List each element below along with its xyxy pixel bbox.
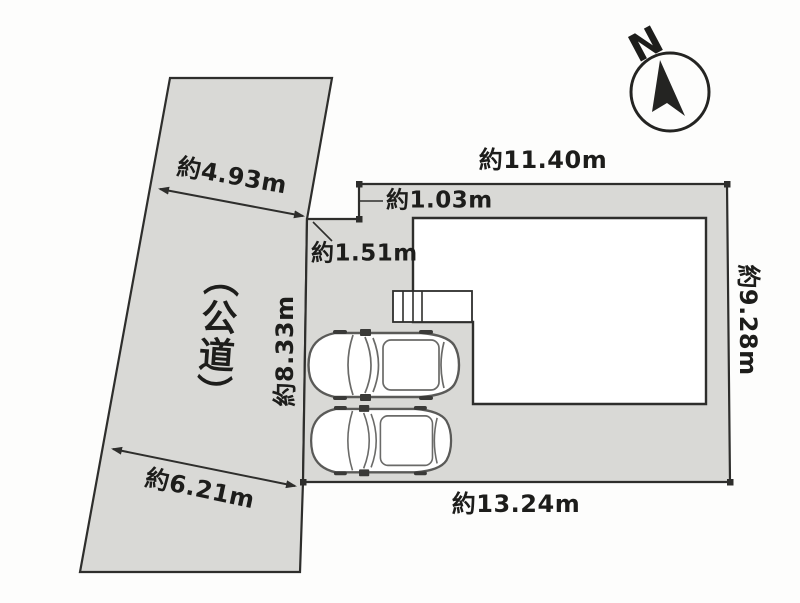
- car-top-view-2: [311, 405, 451, 476]
- dimension-label-plot-right: 約9.28m: [736, 264, 760, 375]
- dimension-label-frontage: 約1.51m: [311, 243, 418, 266]
- entrance-steps: [393, 291, 472, 322]
- car-top-view-1: [309, 329, 460, 401]
- dimension-label-plot-top: 約11.40m: [479, 148, 607, 172]
- site-plan-diagram: 約4.93m 約11.40m 約1.03m 約1.51m 約9.28m 約8.3…: [0, 0, 800, 603]
- dimension-label-notch: 約1.03m: [386, 190, 493, 213]
- road-label: （公道）: [191, 259, 238, 413]
- site-plan-drawing: [0, 0, 800, 603]
- dimension-label-plot-bottom: 約13.24m: [452, 492, 580, 516]
- north-needle-icon: [652, 60, 685, 116]
- dimension-label-plot-left: 約8.33m: [273, 295, 297, 406]
